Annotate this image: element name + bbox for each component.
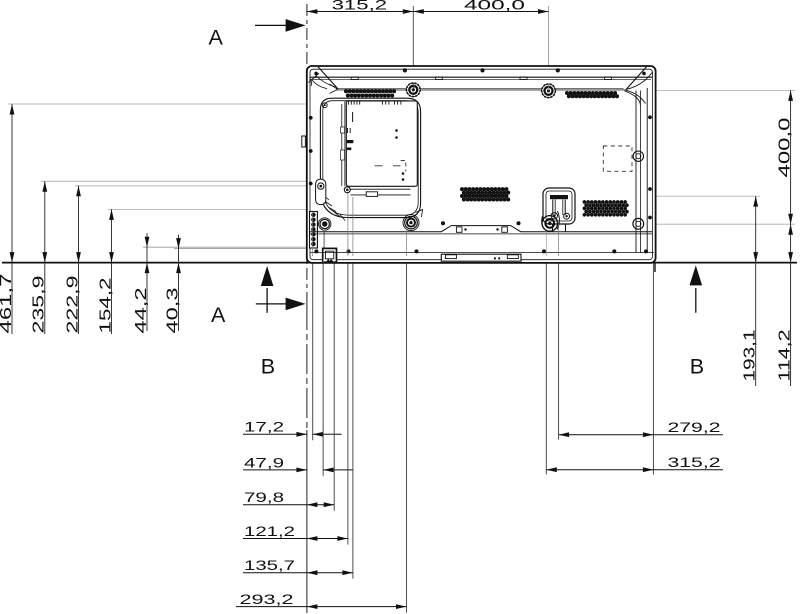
svg-text:121,2: 121,2	[244, 524, 295, 539]
svg-text:315,2: 315,2	[332, 0, 388, 12]
svg-text:154,2: 154,2	[97, 278, 114, 334]
svg-text:A: A	[211, 303, 226, 327]
svg-text:293,2: 293,2	[240, 592, 294, 607]
svg-text:114,2: 114,2	[776, 330, 793, 382]
svg-text:40,3: 40,3	[164, 288, 181, 334]
svg-text:79,8: 79,8	[244, 490, 284, 505]
svg-text:315,2: 315,2	[668, 455, 721, 470]
svg-text:222,9: 222,9	[64, 276, 81, 334]
svg-text:44,2: 44,2	[133, 288, 150, 334]
svg-text:461,7: 461,7	[0, 274, 15, 334]
svg-text:193,1: 193,1	[742, 330, 759, 382]
svg-text:B: B	[690, 355, 704, 379]
svg-text:47,9: 47,9	[244, 455, 284, 470]
svg-text:235,9: 235,9	[31, 276, 48, 334]
svg-text:400,0: 400,0	[776, 118, 793, 178]
svg-text:279,2: 279,2	[668, 420, 721, 435]
svg-text:B: B	[261, 355, 275, 379]
svg-text:400,0: 400,0	[464, 0, 525, 12]
svg-text:A: A	[209, 25, 224, 49]
svg-text:135,7: 135,7	[244, 558, 295, 573]
svg-text:17,2: 17,2	[244, 420, 284, 435]
